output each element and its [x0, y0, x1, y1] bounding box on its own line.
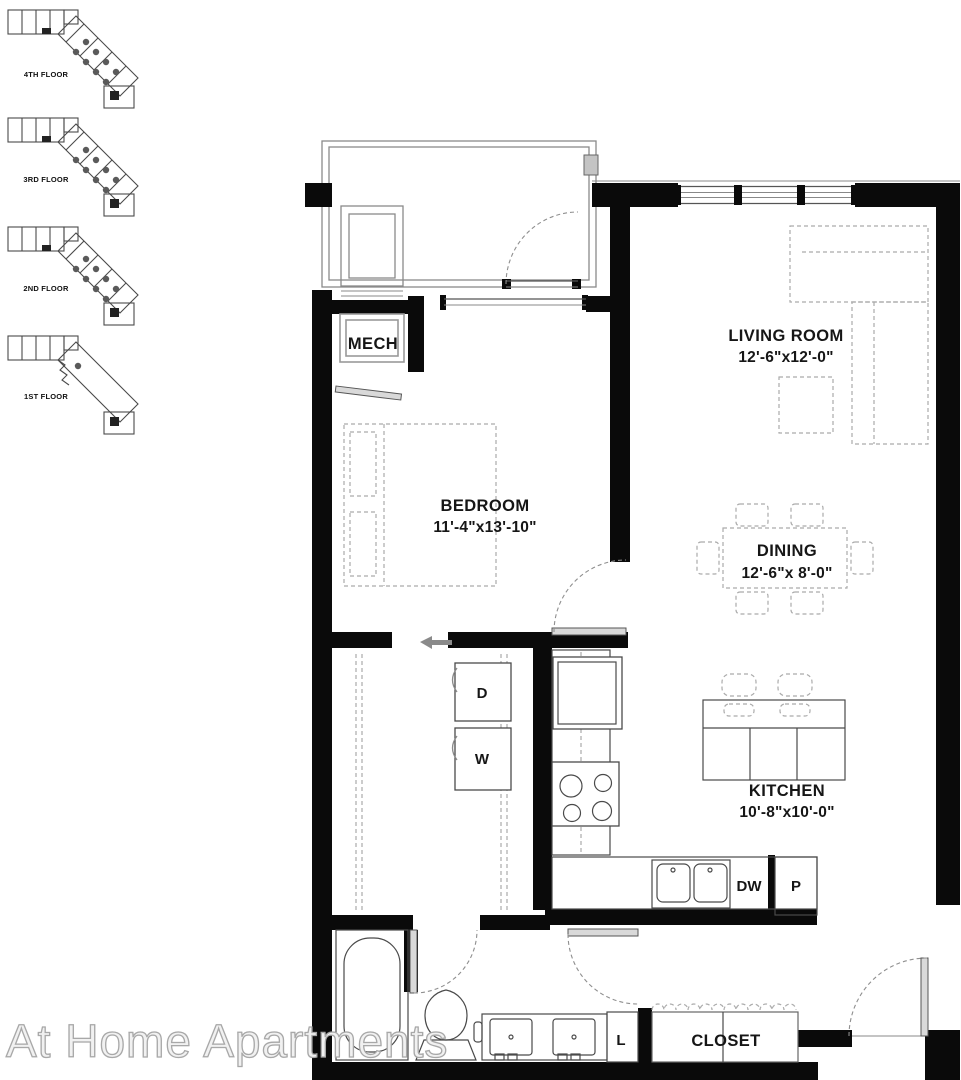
pantry-label: P: [791, 878, 801, 895]
floor-plan-canvas: 4TH FLOOR 3RD FLOOR 2ND FLOOR 1ST FLOOR: [0, 0, 961, 1080]
walkin-closet: [356, 654, 511, 912]
stove: [552, 762, 619, 826]
kitchen-dims: 10'-8"x10'-0": [739, 804, 834, 821]
refrigerator: [553, 657, 622, 729]
kitchen-label: KITCHEN: [749, 782, 825, 800]
dishwasher-label: DW: [737, 878, 763, 895]
balcony-door: [502, 212, 581, 289]
linen-label: L: [616, 1032, 625, 1049]
mech-label: MECH: [348, 335, 398, 353]
hanging-clothes: [652, 1004, 796, 1010]
watermark: At Home Apartments: [6, 1014, 448, 1068]
hall-door: [568, 929, 638, 1004]
kitchen-island: [703, 674, 845, 780]
washer-label: W: [475, 751, 490, 768]
dryer-label: D: [477, 685, 488, 702]
bedroom-label: BEDROOM: [441, 497, 530, 515]
dining-dims: 12'-6"x 8'-0": [741, 565, 832, 582]
closet-label: CLOSET: [691, 1032, 760, 1050]
floor-plan-page: 4TH FLOOR 3RD FLOOR 2ND FLOOR 1ST FLOOR: [0, 0, 961, 1080]
balcony: [322, 141, 598, 287]
mech-door-leaf: [335, 386, 401, 400]
floor-key-4th: [8, 10, 138, 108]
entry-door: [849, 958, 928, 1036]
floor-key-label-2nd: 2ND FLOOR: [23, 284, 69, 293]
floor-key-1st: [8, 336, 138, 434]
bathroom-door: [410, 930, 477, 993]
floor-key-2nd: [8, 227, 138, 325]
floor-key-label-1st: 1ST FLOOR: [24, 392, 68, 401]
living-room-label: LIVING ROOM: [728, 327, 843, 345]
bedroom-dims: 11'-4"x13'-10": [433, 519, 536, 536]
hose-bib: [584, 155, 598, 175]
kitchen-sink: [652, 860, 730, 908]
closet-opening-arrow: [420, 636, 452, 649]
kitchen-counter: [552, 650, 622, 855]
living-room-dims: 12'-6"x12'-0": [738, 349, 833, 366]
floor-key-3rd: [8, 118, 138, 216]
bedroom-door: [552, 560, 626, 635]
floor-key-label-3rd: 3RD FLOOR: [23, 175, 69, 184]
floor-key-label-4th: 4TH FLOOR: [24, 70, 69, 79]
vanity: [474, 1014, 607, 1060]
sink-counter: [552, 857, 817, 915]
bedroom-window: [444, 299, 586, 305]
dining-label: DINING: [757, 542, 817, 560]
